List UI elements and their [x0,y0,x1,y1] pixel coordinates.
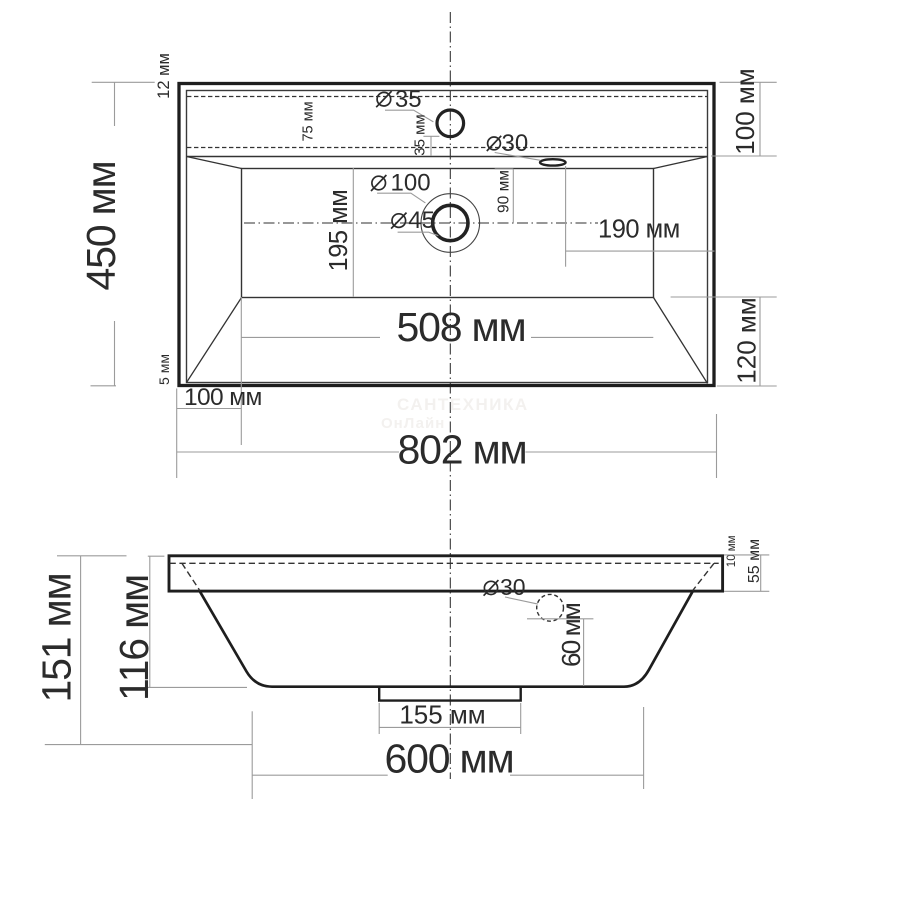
svg-text:30: 30 [500,574,526,600]
svg-text:100: 100 [391,169,431,196]
svg-text:190 мм: 190 мм [598,216,680,244]
svg-text:10 мм: 10 мм [726,535,738,567]
svg-text:30: 30 [502,130,529,157]
svg-text:802 мм: 802 мм [398,427,527,473]
svg-text:60 мм: 60 мм [556,603,586,667]
svg-text:116 мм: 116 мм [111,575,157,701]
svg-text:195 мм: 195 мм [325,190,353,272]
svg-text:450 мм: 450 мм [78,162,124,291]
svg-text:35 мм: 35 мм [411,114,428,155]
svg-text:5 мм: 5 мм [156,354,172,385]
svg-text:120 мм: 120 мм [732,297,762,383]
svg-text:508 мм: 508 мм [397,304,526,350]
svg-text:55 мм: 55 мм [746,539,763,583]
svg-text:САНТЕХНИКА: САНТЕХНИКА [397,395,529,414]
svg-text:ОнЛайн: ОнЛайн [381,415,445,432]
svg-text:35: 35 [395,86,422,113]
svg-text:90 мм: 90 мм [496,170,513,213]
svg-text:600 мм: 600 мм [385,736,514,782]
svg-text:100 мм: 100 мм [730,68,760,154]
svg-text:75 мм: 75 мм [301,101,317,141]
svg-text:151 мм: 151 мм [34,574,80,703]
svg-text:45: 45 [408,207,435,234]
svg-text:100 мм: 100 мм [184,384,262,411]
svg-text:155 мм: 155 мм [399,700,485,730]
svg-text:12 мм: 12 мм [155,53,173,99]
